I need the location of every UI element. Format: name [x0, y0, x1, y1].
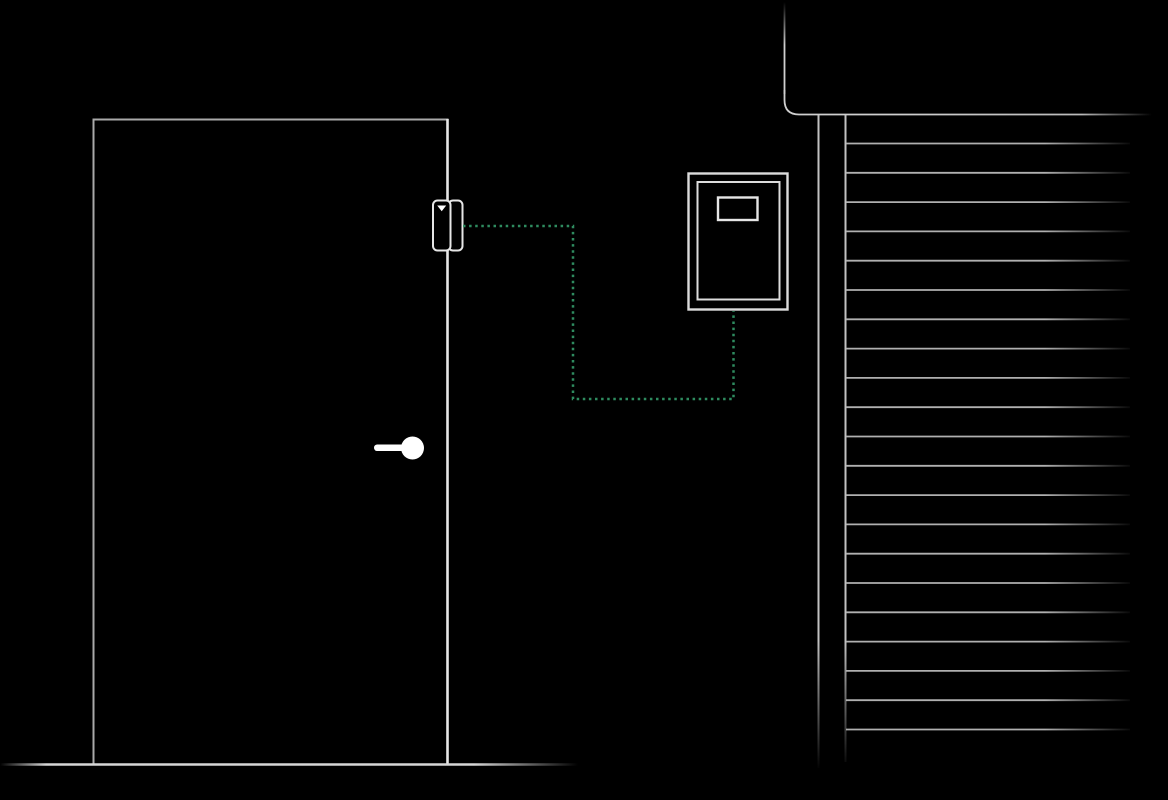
door-panel — [94, 120, 448, 765]
wall-corner — [785, 2, 1153, 115]
security-illustration-canvas — [0, 0, 1168, 800]
door — [94, 119, 448, 765]
window-blinds-slats — [846, 144, 1130, 730]
door-sensor — [433, 201, 463, 251]
control-panel-body — [689, 174, 788, 310]
control-panel — [689, 174, 788, 310]
control-panel-display — [718, 198, 758, 221]
illustration-stage — [0, 0, 1168, 800]
window-with-blinds — [819, 115, 1131, 768]
door-handle-knob — [401, 437, 424, 460]
door-handle — [374, 437, 424, 460]
wall-corner-curve-and-top-rail — [785, 90, 1153, 115]
